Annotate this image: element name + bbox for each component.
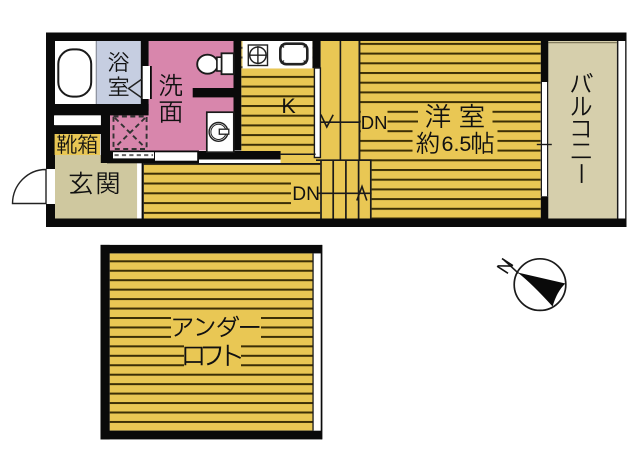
- svg-text:6.5: 6.5: [442, 132, 472, 156]
- svg-text:DN: DN: [292, 184, 320, 205]
- svg-text:DN: DN: [361, 112, 388, 133]
- svg-text:K: K: [281, 94, 296, 118]
